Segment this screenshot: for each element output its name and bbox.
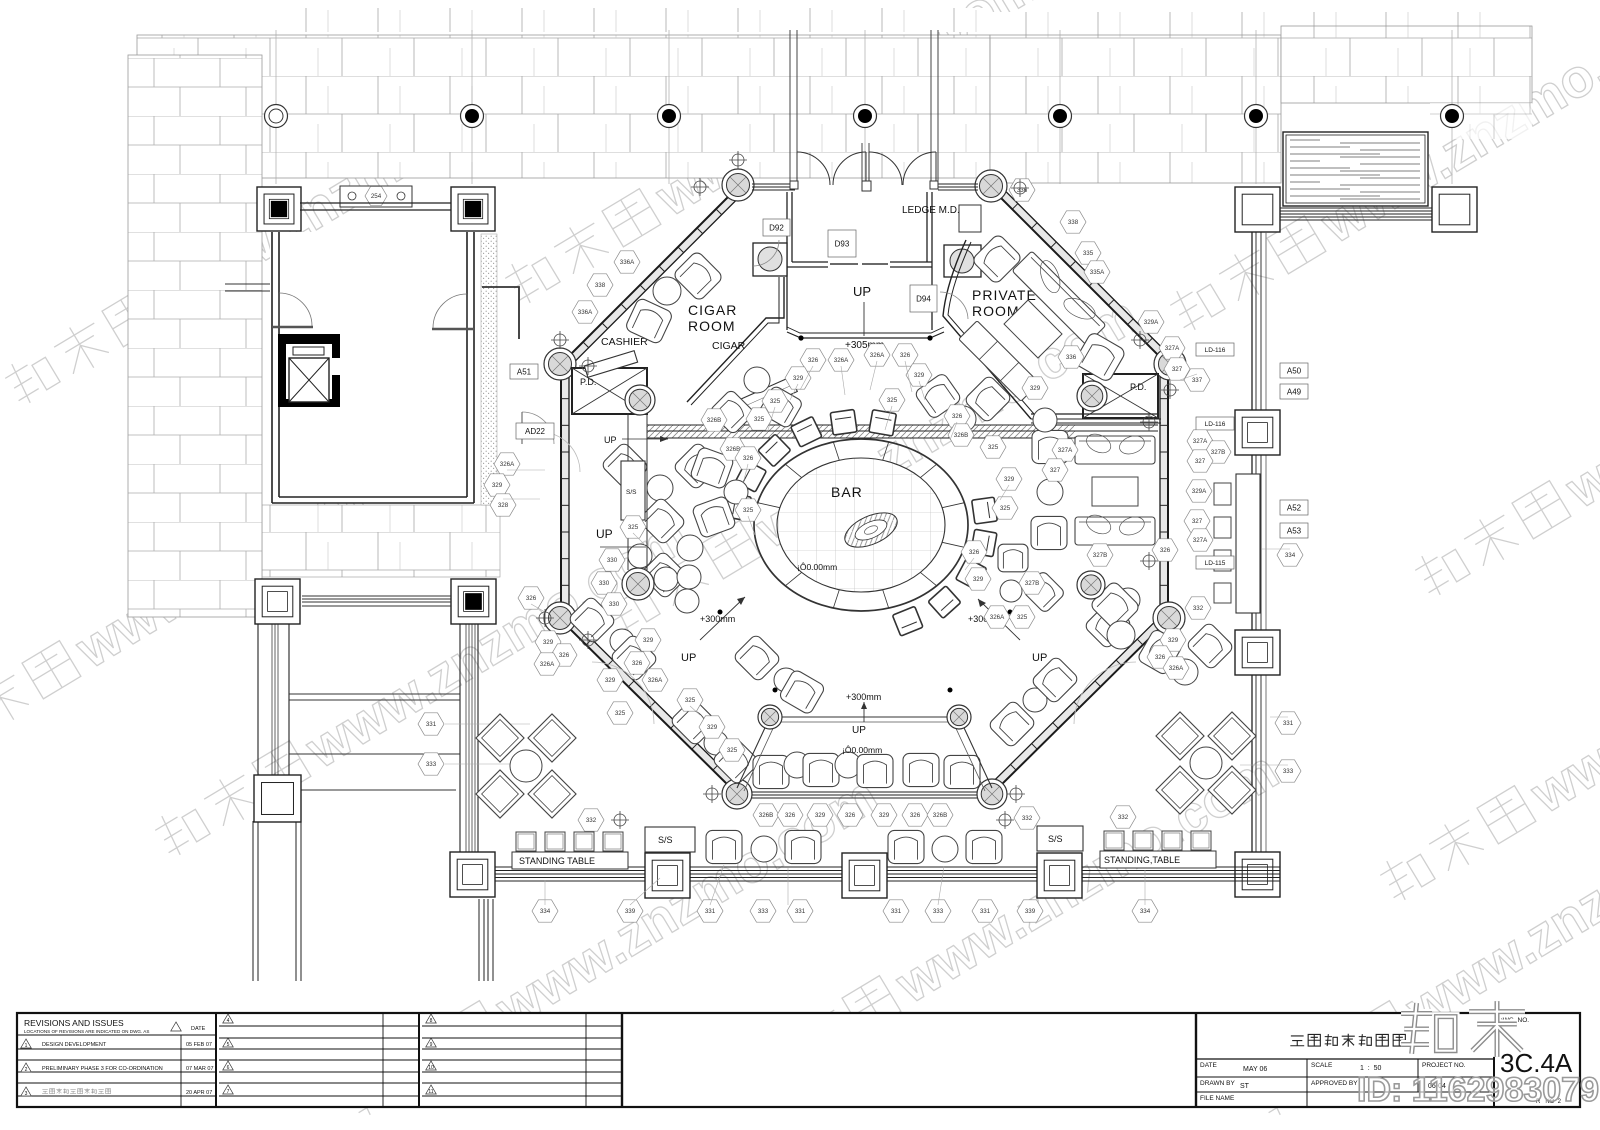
svg-text:326: 326 <box>526 595 537 602</box>
svg-text:A51: A51 <box>517 367 532 376</box>
svg-text:338: 338 <box>595 282 606 289</box>
svg-text:331: 331 <box>891 908 902 915</box>
svg-text:327: 327 <box>1050 467 1061 474</box>
svg-text:D94: D94 <box>916 294 931 303</box>
svg-text:10: 10 <box>428 1065 434 1071</box>
svg-text:325: 325 <box>887 397 898 404</box>
svg-text:339: 339 <box>1025 908 1036 915</box>
svg-text:326B: 326B <box>759 812 773 819</box>
svg-text:339: 339 <box>625 908 636 915</box>
svg-text:9: 9 <box>430 1042 433 1048</box>
svg-text:5: 5 <box>227 1042 230 1048</box>
svg-text:LD-115: LD-115 <box>1205 560 1226 567</box>
svg-text:327A: 327A <box>1058 447 1073 454</box>
svg-text:325: 325 <box>988 444 999 451</box>
svg-text:332: 332 <box>1022 815 1033 822</box>
svg-text:326: 326 <box>632 660 643 667</box>
svg-text:326: 326 <box>900 352 911 359</box>
svg-text:FILE NAME: FILE NAME <box>1200 1095 1235 1102</box>
svg-text:329: 329 <box>815 812 826 819</box>
svg-text:326A: 326A <box>834 357 849 364</box>
svg-text:UP: UP <box>596 527 613 541</box>
svg-text:326: 326 <box>559 652 570 659</box>
svg-text:¡Ô0.00mm: ¡Ô0.00mm <box>797 562 837 572</box>
svg-text:329: 329 <box>492 482 503 489</box>
svg-text:325: 325 <box>615 710 626 717</box>
svg-text:325: 325 <box>770 398 781 405</box>
svg-text:336A: 336A <box>578 309 593 316</box>
svg-text:327B: 327B <box>1025 580 1039 587</box>
svg-text:326A: 326A <box>500 461 515 468</box>
svg-text:DATE: DATE <box>1200 1062 1218 1069</box>
svg-text:326A: 326A <box>648 677 663 684</box>
svg-text:325: 325 <box>727 747 738 754</box>
svg-text:325: 325 <box>743 507 754 514</box>
svg-text:07 MAR 07: 07 MAR 07 <box>186 1066 214 1072</box>
svg-text:DRAWN BY: DRAWN BY <box>1200 1080 1235 1087</box>
svg-text:335A: 335A <box>1090 269 1105 276</box>
svg-text:333: 333 <box>1283 768 1294 775</box>
svg-text:+300mm: +300mm <box>700 614 735 624</box>
svg-text:P.D.: P.D. <box>580 377 596 387</box>
svg-text:329: 329 <box>1004 476 1015 483</box>
svg-text:326: 326 <box>1160 547 1171 554</box>
svg-text:APPROVED BY: APPROVED BY <box>1311 1080 1358 1087</box>
svg-text:S/S: S/S <box>658 835 673 845</box>
svg-text:STANDING,TABLE: STANDING,TABLE <box>1104 855 1180 865</box>
svg-text:CIGAR: CIGAR <box>712 340 746 352</box>
svg-text:S/S: S/S <box>1048 834 1063 844</box>
svg-text:326: 326 <box>910 812 921 819</box>
svg-text:333: 333 <box>933 908 944 915</box>
svg-text:326A: 326A <box>990 614 1005 621</box>
svg-text:LEDGE M.D.: LEDGE M.D. <box>902 205 960 216</box>
svg-text:A52: A52 <box>1287 503 1302 512</box>
svg-text:D93: D93 <box>835 239 850 248</box>
svg-text:UP: UP <box>853 284 871 299</box>
svg-text:CASHIER: CASHIER <box>601 336 648 348</box>
svg-text:330: 330 <box>607 557 618 564</box>
svg-text:325: 325 <box>754 416 765 423</box>
svg-text:334: 334 <box>540 908 551 915</box>
svg-text:05 FEB 07: 05 FEB 07 <box>186 1042 212 1048</box>
svg-text:7: 7 <box>227 1089 230 1095</box>
svg-text:331: 331 <box>795 908 806 915</box>
svg-text:332: 332 <box>1118 814 1129 821</box>
svg-text:MAY 06: MAY 06 <box>1243 1066 1267 1073</box>
svg-text:3: 3 <box>25 1091 28 1097</box>
svg-text:325: 325 <box>1017 614 1028 621</box>
svg-text:¡Ô0.00mm: ¡Ô0.00mm <box>842 745 882 755</box>
svg-text:UP: UP <box>1032 652 1047 664</box>
svg-text:ROOM: ROOM <box>688 318 736 334</box>
svg-text:327A: 327A <box>1165 345 1180 352</box>
svg-text:329: 329 <box>605 677 616 684</box>
svg-text:326: 326 <box>952 413 963 420</box>
svg-text:338: 338 <box>1068 219 1079 226</box>
svg-text:333: 333 <box>758 908 769 915</box>
svg-text:326B: 326B <box>707 417 721 424</box>
svg-text:327: 327 <box>1172 366 1183 373</box>
svg-text:329: 329 <box>543 639 554 646</box>
svg-text:329: 329 <box>707 724 718 731</box>
svg-text:325: 325 <box>628 524 639 531</box>
svg-text:326B: 326B <box>954 432 968 439</box>
svg-text:326: 326 <box>808 357 819 364</box>
svg-text:6: 6 <box>227 1065 230 1071</box>
svg-text:331: 331 <box>426 721 437 728</box>
svg-text:A50: A50 <box>1287 366 1302 375</box>
svg-text:332: 332 <box>586 817 597 824</box>
svg-text:325: 325 <box>685 697 696 704</box>
svg-text:P.D.: P.D. <box>1130 382 1146 392</box>
svg-text:+300mm: +300mm <box>846 692 881 702</box>
svg-text:327A: 327A <box>1193 537 1208 544</box>
svg-text:331: 331 <box>980 908 991 915</box>
svg-text:2: 2 <box>25 1067 28 1073</box>
svg-text:329A: 329A <box>1144 319 1159 326</box>
svg-text:327B: 327B <box>1211 449 1225 456</box>
svg-text:326A: 326A <box>1169 665 1184 672</box>
svg-text:327B: 327B <box>1093 552 1107 559</box>
svg-text:A49: A49 <box>1287 387 1302 396</box>
svg-text:PRELIMINARY PHASE 3 FOR CO-ORD: PRELIMINARY PHASE 3 FOR CO-ORDINATION <box>42 1066 163 1072</box>
svg-text:335: 335 <box>1083 250 1094 257</box>
svg-text:S/S: S/S <box>626 489 637 496</box>
svg-text:331: 331 <box>705 908 716 915</box>
svg-text:328: 328 <box>498 502 509 509</box>
svg-text:325: 325 <box>1000 505 1011 512</box>
svg-text:326: 326 <box>1155 654 1166 661</box>
svg-text:336A: 336A <box>620 259 635 266</box>
svg-text:326: 326 <box>785 812 796 819</box>
svg-text:326A: 326A <box>870 352 885 359</box>
svg-text:254: 254 <box>371 193 382 200</box>
svg-text:327A: 327A <box>1193 438 1208 445</box>
svg-text:329: 329 <box>1030 385 1041 392</box>
svg-text:336: 336 <box>1066 354 1077 361</box>
svg-text:329: 329 <box>973 576 984 583</box>
svg-text:A53: A53 <box>1287 526 1302 535</box>
svg-text:8: 8 <box>430 1018 433 1024</box>
svg-text:329: 329 <box>879 812 890 819</box>
svg-text:326: 326 <box>743 455 754 462</box>
svg-text:LD-116: LD-116 <box>1205 347 1226 354</box>
svg-text:329: 329 <box>793 375 804 382</box>
svg-text:326A: 326A <box>540 661 555 668</box>
svg-text:330: 330 <box>599 580 610 587</box>
svg-text:4: 4 <box>227 1018 230 1024</box>
svg-text:326: 326 <box>969 549 980 556</box>
svg-text:CIGAR: CIGAR <box>688 302 737 318</box>
svg-text:STANDING TABLE: STANDING TABLE <box>519 856 595 866</box>
svg-text:330: 330 <box>609 601 620 608</box>
svg-text:LD-116: LD-116 <box>1205 421 1226 428</box>
svg-text:11: 11 <box>428 1089 433 1095</box>
svg-text:UP: UP <box>681 652 696 664</box>
svg-text:333: 333 <box>426 761 437 768</box>
svg-text:20 APR 07: 20 APR 07 <box>186 1090 212 1096</box>
svg-text:DATE: DATE <box>191 1026 206 1032</box>
svg-text:332: 332 <box>1193 605 1204 612</box>
svg-text:BAR: BAR <box>831 484 863 500</box>
svg-text:UP: UP <box>852 725 866 736</box>
svg-text:331: 331 <box>1283 720 1294 727</box>
svg-text:326: 326 <box>845 812 856 819</box>
svg-text:REVISIONS AND ISSUES: REVISIONS AND ISSUES <box>24 1018 124 1028</box>
svg-text:329A: 329A <box>1192 488 1207 495</box>
svg-text:ID: 1162983079: ID: 1162983079 <box>1357 1071 1599 1109</box>
svg-text:PROJECT NO.: PROJECT NO. <box>1422 1062 1466 1069</box>
svg-text:SCALE: SCALE <box>1311 1062 1333 1069</box>
svg-text:ST: ST <box>1240 1083 1250 1090</box>
svg-text:DESIGN DEVELOPMENT: DESIGN DEVELOPMENT <box>42 1042 107 1048</box>
svg-text:329: 329 <box>914 372 925 379</box>
svg-text:329: 329 <box>643 637 654 644</box>
svg-text:334: 334 <box>1285 552 1296 559</box>
svg-text:AD22: AD22 <box>525 427 546 436</box>
svg-text:337: 337 <box>1192 377 1203 384</box>
svg-text:329: 329 <box>1168 637 1179 644</box>
svg-text:334: 334 <box>1140 908 1151 915</box>
svg-text:327: 327 <box>1192 518 1203 525</box>
svg-text:327: 327 <box>1195 458 1206 465</box>
svg-text:UP: UP <box>604 435 617 445</box>
svg-text:LOCATIONS OF REVISIONS ARE IND: LOCATIONS OF REVISIONS ARE INDICATED ON … <box>24 1029 149 1034</box>
svg-text:1: 1 <box>25 1043 28 1049</box>
svg-text:326B: 326B <box>933 812 947 819</box>
svg-text:D92: D92 <box>769 223 784 232</box>
